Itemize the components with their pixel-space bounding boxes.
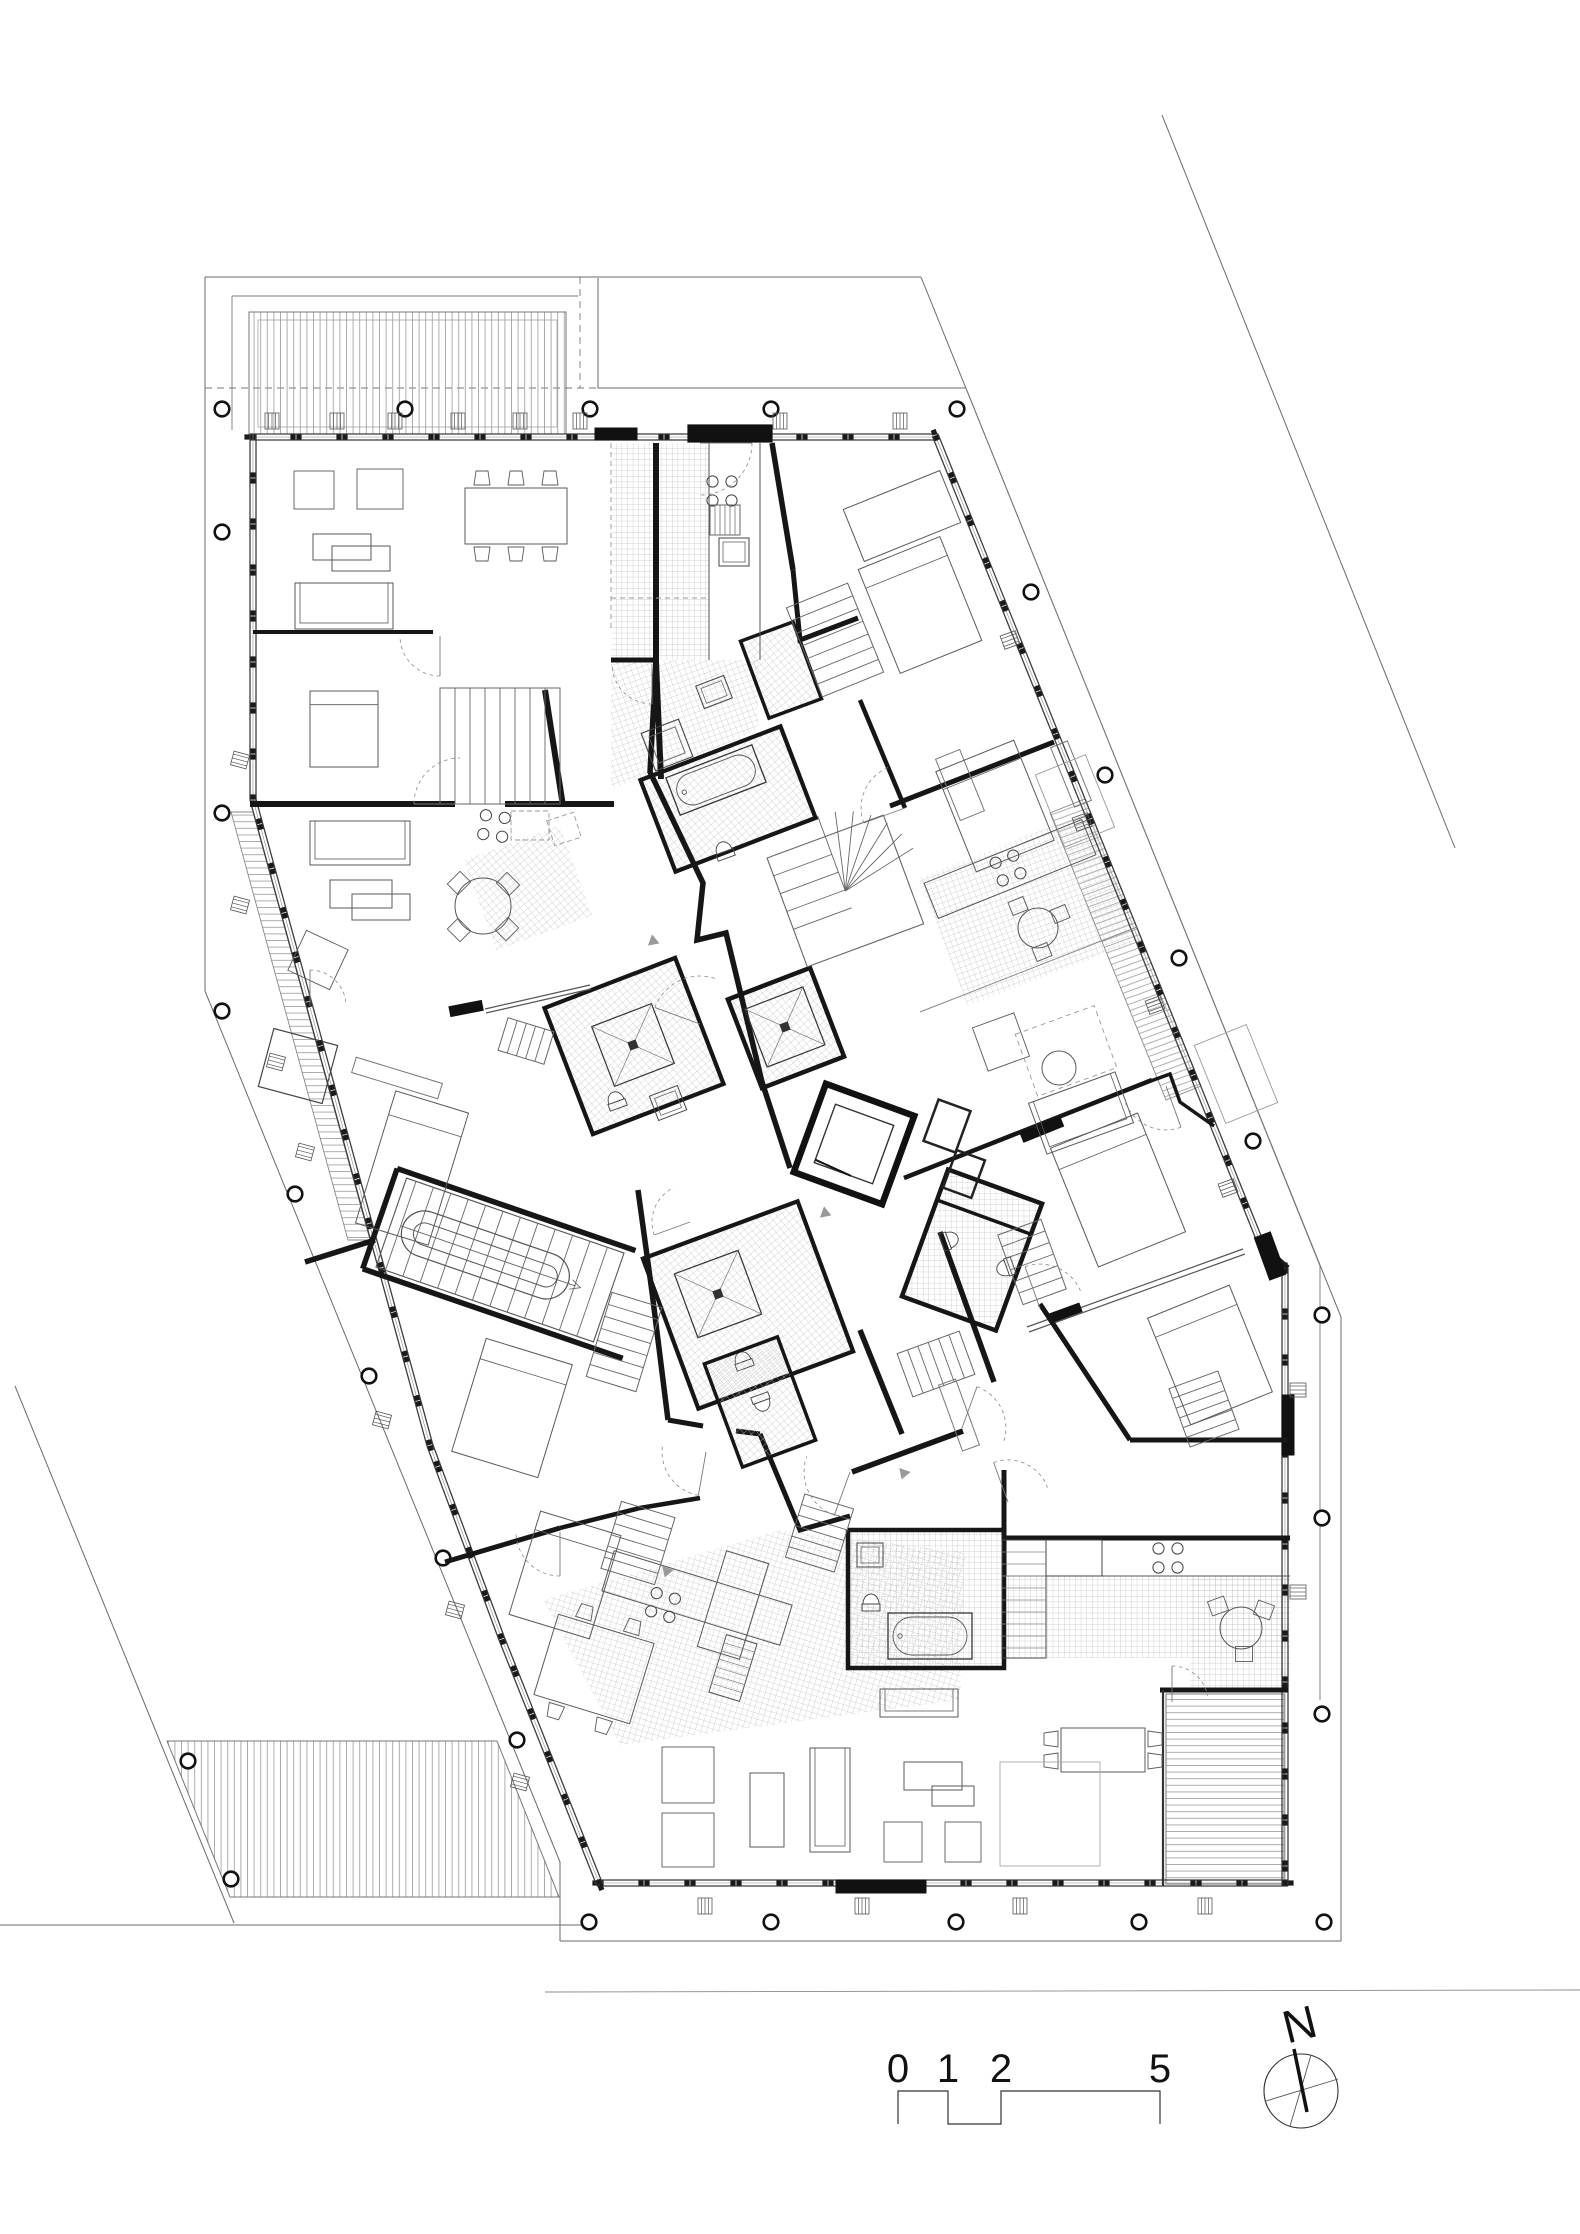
svg-text:1: 1 xyxy=(937,2047,959,2091)
svg-text:0: 0 xyxy=(887,2047,909,2091)
svg-text:2: 2 xyxy=(990,2047,1012,2091)
svg-text:5: 5 xyxy=(1149,2047,1171,2091)
